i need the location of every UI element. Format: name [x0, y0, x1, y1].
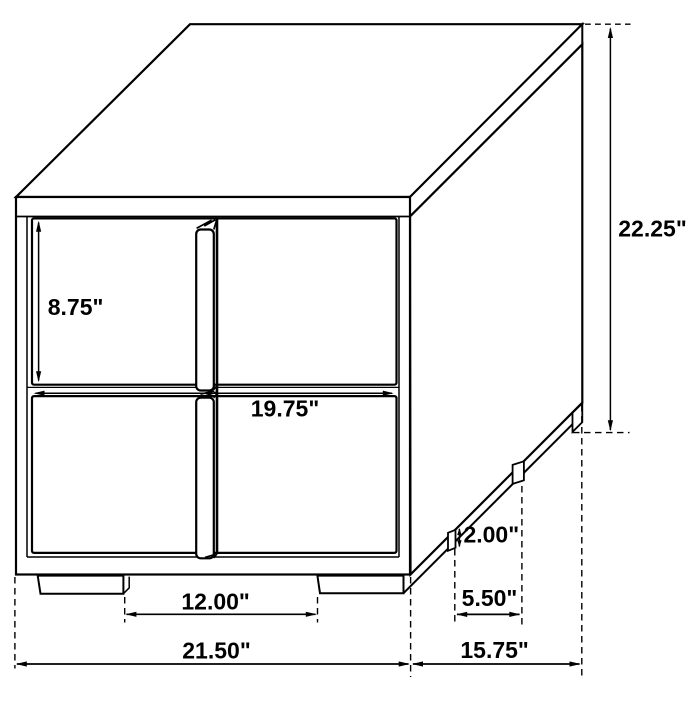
svg-text:22.25": 22.25" [618, 216, 686, 242]
svg-text:2.00": 2.00" [463, 522, 519, 548]
svg-text:8.75": 8.75" [48, 294, 104, 320]
svg-text:21.50": 21.50" [182, 637, 250, 663]
svg-text:19.75": 19.75" [251, 396, 319, 422]
svg-text:5.50": 5.50" [462, 585, 518, 611]
svg-text:15.75": 15.75" [460, 637, 528, 663]
svg-text:12.00": 12.00" [181, 588, 249, 614]
